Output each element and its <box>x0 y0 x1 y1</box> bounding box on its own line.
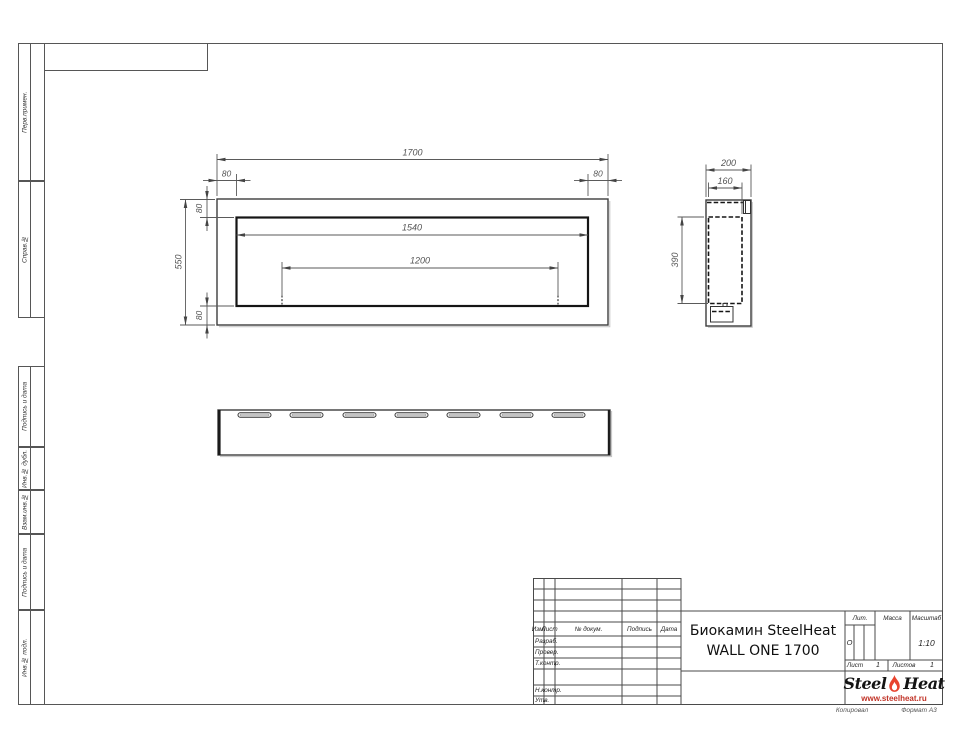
copy-note: Копировал <box>812 707 892 714</box>
company-logo: Steel Heat www.steelheat.ru <box>845 671 943 705</box>
document-title-line1: Биокамин SteelHeat <box>690 623 836 639</box>
row-razrab: Разраб. <box>533 636 555 647</box>
side-top-detail <box>744 201 751 214</box>
document-title-line2: WALL ONE 1700 <box>706 643 819 659</box>
list-value: 1 <box>871 660 885 671</box>
side-bottom-detail <box>711 304 734 323</box>
row-prover: Провер. <box>533 647 555 658</box>
dim-text-80-right: 80 <box>593 169 603 179</box>
dim-text-1200: 1200 <box>410 256 430 266</box>
dim-text-80-left: 80 <box>222 169 232 179</box>
dim-text-390: 390 <box>670 252 680 267</box>
col-list: Лист <box>544 622 555 636</box>
col-sign: Подпись <box>622 622 657 636</box>
dim-text-80-top: 80 <box>194 204 204 214</box>
dim-text-160: 160 <box>717 176 732 186</box>
dim-text-550: 550 <box>174 254 184 269</box>
logo-url: www.steelheat.ru <box>861 694 927 703</box>
bottom-view <box>218 410 612 457</box>
list-label: Лист <box>845 660 865 671</box>
logo-steel: Steel <box>844 674 887 693</box>
flame-icon <box>887 675 902 693</box>
lit-label: Лит. <box>845 611 875 625</box>
col-doc: № докум. <box>555 622 622 636</box>
dim-inset-right: 80 <box>574 169 622 197</box>
front-view: 1700 80 80 1540 <box>174 148 623 339</box>
massa-label: Масса <box>875 611 910 625</box>
dim-text-1540: 1540 <box>402 223 422 233</box>
row-tkontr: Т.контр. <box>533 658 555 669</box>
side-view: 200 160 390 <box>670 158 752 327</box>
masshtab-label: Масштаб <box>910 611 943 625</box>
listov-label: Листов <box>890 660 918 671</box>
title-block: Изм. Лист № докум. Подпись Дата Разраб. … <box>533 578 943 705</box>
listov-value: 1 <box>925 660 939 671</box>
vent-slots <box>238 413 585 417</box>
masshtab-value: 1:10 <box>910 625 943 660</box>
logo-wordmark: Steel Heat <box>844 674 945 693</box>
drawing-sheet: Перв.примен. Справ.№ Подпись и дата Инв.… <box>0 0 970 749</box>
logo-heat: Heat <box>903 674 944 693</box>
dim-inset-left: 80 <box>203 169 251 197</box>
col-date: Дата <box>657 622 681 636</box>
dim-total-width: 1700 <box>217 148 608 197</box>
row-utv: Утв. <box>533 696 555 705</box>
lit-value: О <box>845 625 854 660</box>
format-note: Формат А3 <box>888 707 950 714</box>
dim-text-1700: 1700 <box>402 148 422 158</box>
document-title: Биокамин SteelHeat WALL ONE 1700 <box>681 611 845 671</box>
dim-text-80-bottom: 80 <box>194 311 204 321</box>
dim-text-200: 200 <box>720 158 736 168</box>
row-nkontr: Н.контр. <box>533 685 555 696</box>
dim-inner-height: 390 <box>670 217 708 304</box>
